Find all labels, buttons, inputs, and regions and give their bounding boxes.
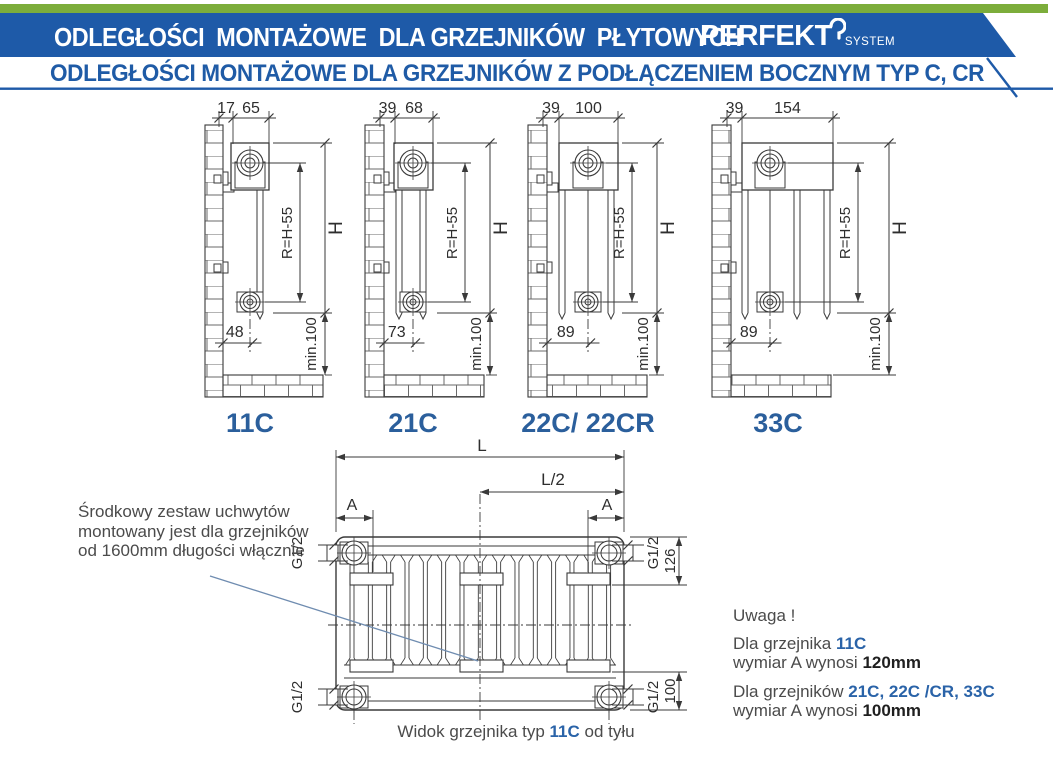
side-view-11c: 1765HR=H-5548min.10011C — [205, 100, 347, 438]
note-center-bracket: Środkowy zestaw uchwytów montowany jest … — [78, 502, 309, 561]
mounting-bracket — [460, 660, 503, 672]
panel-plate — [420, 313, 426, 319]
dim-floor-clearance: min.100 — [468, 317, 485, 370]
dim-arrow — [480, 489, 489, 495]
dim-wall-gap: 39 — [726, 100, 744, 117]
logo-question-hook-icon — [829, 18, 846, 42]
dim-length: L — [477, 436, 486, 455]
rear-view-caption: Widok grzejnika typ 11C od tyłu — [336, 722, 696, 742]
panel-plate — [396, 313, 402, 319]
diagram-type-label: 33C — [753, 408, 803, 438]
dim-arrow — [886, 313, 892, 322]
brand-logo-subtext: SYSTEM — [845, 36, 895, 51]
wall-bracket — [223, 172, 228, 185]
subtitle: ODLEGŁOŚCI MONTAŻOWE DLA GRZEJNIKÓW Z PO… — [50, 60, 984, 88]
caption-text: od tyłu — [580, 722, 635, 741]
wall-bracket — [214, 264, 221, 272]
dim-height: H — [326, 221, 347, 235]
wall-bracket — [384, 262, 389, 273]
wall-bracket — [384, 172, 389, 185]
panel-plate — [608, 313, 614, 319]
dim-arrow — [615, 454, 624, 460]
dim-radius: R=H-55 — [279, 207, 296, 259]
dim-floor-clearance: min.100 — [635, 317, 652, 370]
wall-bracket — [731, 172, 736, 185]
dimension-value: 120mm — [862, 653, 921, 672]
dim-wall-gap: 39 — [379, 100, 397, 117]
dim-arrow — [676, 576, 682, 585]
note-title: Uwaga ! — [733, 606, 995, 626]
dim-arrow — [336, 454, 345, 460]
note-item1-line2: wymiar A wynosi 120mm — [733, 653, 995, 673]
subtitle-edge-line — [987, 58, 1017, 97]
dim-arrow — [462, 163, 468, 172]
dim-bottom-offset: 100 — [662, 678, 679, 703]
mounting-bracket — [350, 660, 393, 672]
wall-bracket — [374, 264, 381, 272]
note-item2-line2: wymiar A wynosi 100mm — [733, 701, 995, 721]
dim-arrow — [297, 163, 303, 172]
dim-arrow — [615, 515, 624, 521]
dim-height: H — [491, 221, 512, 235]
dim-wall-gap: 17 — [217, 100, 235, 117]
diagram-type-label: 22C/ 22CR — [521, 408, 655, 438]
wall-bracket — [214, 175, 221, 183]
dim-arrow — [322, 366, 328, 375]
dim-arrow — [297, 293, 303, 302]
note-item1-line1: Dla grzejnika 11C — [733, 634, 995, 654]
mounting-bracket — [350, 573, 393, 585]
dim-bottom: 48 — [226, 324, 244, 341]
note-text: Dla grzejników — [733, 682, 848, 701]
dim-depth: 100 — [575, 100, 602, 117]
dim-radius: R=H-55 — [837, 207, 854, 259]
dim-half-length: L/2 — [541, 470, 565, 489]
dim-thread: G1/2 — [645, 537, 662, 570]
panel-plate — [794, 313, 800, 319]
dim-depth: 65 — [242, 100, 260, 117]
header-green-bar — [0, 4, 1048, 13]
note-text: wymiar A wynosi — [733, 701, 862, 720]
dim-arrow — [588, 515, 597, 521]
dim-floor-clearance: min.100 — [303, 317, 320, 370]
dim-floor-clearance: min.100 — [867, 317, 884, 370]
dim-arrow — [615, 489, 624, 495]
diagram-type-label: 21C — [388, 408, 438, 438]
caption-text: Widok grzejnika typ — [397, 722, 549, 741]
note-text: wymiar A wynosi — [733, 653, 862, 672]
radiator-mounting-sheet: 1765HR=H-5548min.10011C3968HR=H-5573min.… — [0, 0, 1053, 769]
note-line: Środkowy zestaw uchwytów — [78, 502, 309, 522]
wall-bracket — [223, 262, 228, 273]
dim-arrow — [462, 293, 468, 302]
wall-bracket — [547, 262, 552, 273]
panel-plate — [824, 313, 830, 319]
dim-height: H — [890, 221, 911, 235]
mounting-bracket — [567, 573, 610, 585]
dim-height: H — [658, 221, 679, 235]
mounting-bracket — [460, 573, 503, 585]
dim-arrow — [629, 293, 635, 302]
dim-radius: R=H-55 — [611, 207, 628, 259]
diagram-type-label: 11C — [226, 408, 274, 438]
panel-plate — [742, 313, 748, 319]
dim-arrow — [629, 163, 635, 172]
dim-arrow — [322, 313, 328, 322]
dim-bottom: 89 — [740, 324, 758, 341]
dim-arrow — [336, 515, 345, 521]
dim-arrow — [855, 293, 861, 302]
wall-bracket — [537, 264, 544, 272]
side-view-22c-22cr: 39100HR=H-5589min.10022C/ 22CR — [521, 100, 679, 438]
wall-bracket — [721, 175, 728, 183]
page-title: ODLEGŁOŚCI MONTAŻOWE DLA GRZEJNIKÓW PŁYT… — [54, 22, 742, 53]
wall — [205, 125, 223, 397]
floor — [731, 375, 831, 397]
note-line: montowany jest dla grzejników — [78, 522, 309, 542]
dim-top-offset: 126 — [662, 548, 679, 573]
radiator-type: 11C — [550, 722, 580, 741]
dim-bracket-offset: A — [347, 497, 358, 514]
dimension-value: 100mm — [862, 701, 921, 720]
wall-bracket — [731, 262, 736, 273]
dim-arrow — [855, 163, 861, 172]
wall — [528, 125, 547, 397]
mounting-bracket — [567, 660, 610, 672]
dim-depth: 68 — [405, 100, 423, 117]
dim-depth: 154 — [774, 100, 801, 117]
note-uwaga: Uwaga ! Dla grzejnika 11C wymiar A wynos… — [733, 606, 995, 721]
radiator-types: 21C, 22C /CR, 33C — [848, 682, 994, 701]
dim-bottom: 89 — [557, 324, 575, 341]
wall-bracket — [547, 172, 552, 185]
floor — [384, 375, 484, 397]
side-view-21c: 3968HR=H-5573min.10021C — [365, 100, 512, 438]
wall-bracket — [537, 175, 544, 183]
dim-arrow — [487, 366, 493, 375]
wall — [712, 125, 731, 397]
note-line: od 1600mm długości włącznie — [78, 541, 309, 561]
note-item2-line1: Dla grzejników 21C, 22C /CR, 33C — [733, 682, 995, 702]
panel-plate — [559, 313, 565, 319]
dim-arrow — [364, 515, 373, 521]
note-text: Dla grzejnika — [733, 634, 836, 653]
floor — [223, 375, 323, 397]
dim-arrow — [886, 366, 892, 375]
brand-logo: PERFEKT SYSTEM — [700, 17, 895, 51]
panel-plate — [257, 313, 263, 319]
rear-view-diagram: LL/2AAG1/2G1/2G1/2G1/2126100 — [210, 436, 687, 724]
wall-bracket — [721, 264, 728, 272]
dim-arrow — [676, 537, 682, 546]
dim-thread: G1/2 — [645, 681, 662, 714]
dim-arrow — [654, 366, 660, 375]
dim-wall-gap: 39 — [542, 100, 560, 117]
dim-arrow — [654, 313, 660, 322]
side-view-diagrams: 1765HR=H-5548min.10011C3968HR=H-5573min.… — [205, 100, 911, 438]
radiator-type: 11C — [836, 634, 866, 653]
brand-logo-text: PERFEKT — [700, 21, 832, 51]
wall-bracket — [374, 175, 381, 183]
wall — [365, 125, 384, 397]
dim-thread: G1/2 — [289, 681, 306, 714]
floor — [547, 375, 647, 397]
dim-arrow — [487, 313, 493, 322]
dim-bracket-offset: A — [602, 497, 613, 514]
dim-bottom: 73 — [388, 324, 406, 341]
side-view-33c: 39154HR=H-5589min.10033C — [712, 100, 911, 438]
dim-radius: R=H-55 — [444, 207, 461, 259]
